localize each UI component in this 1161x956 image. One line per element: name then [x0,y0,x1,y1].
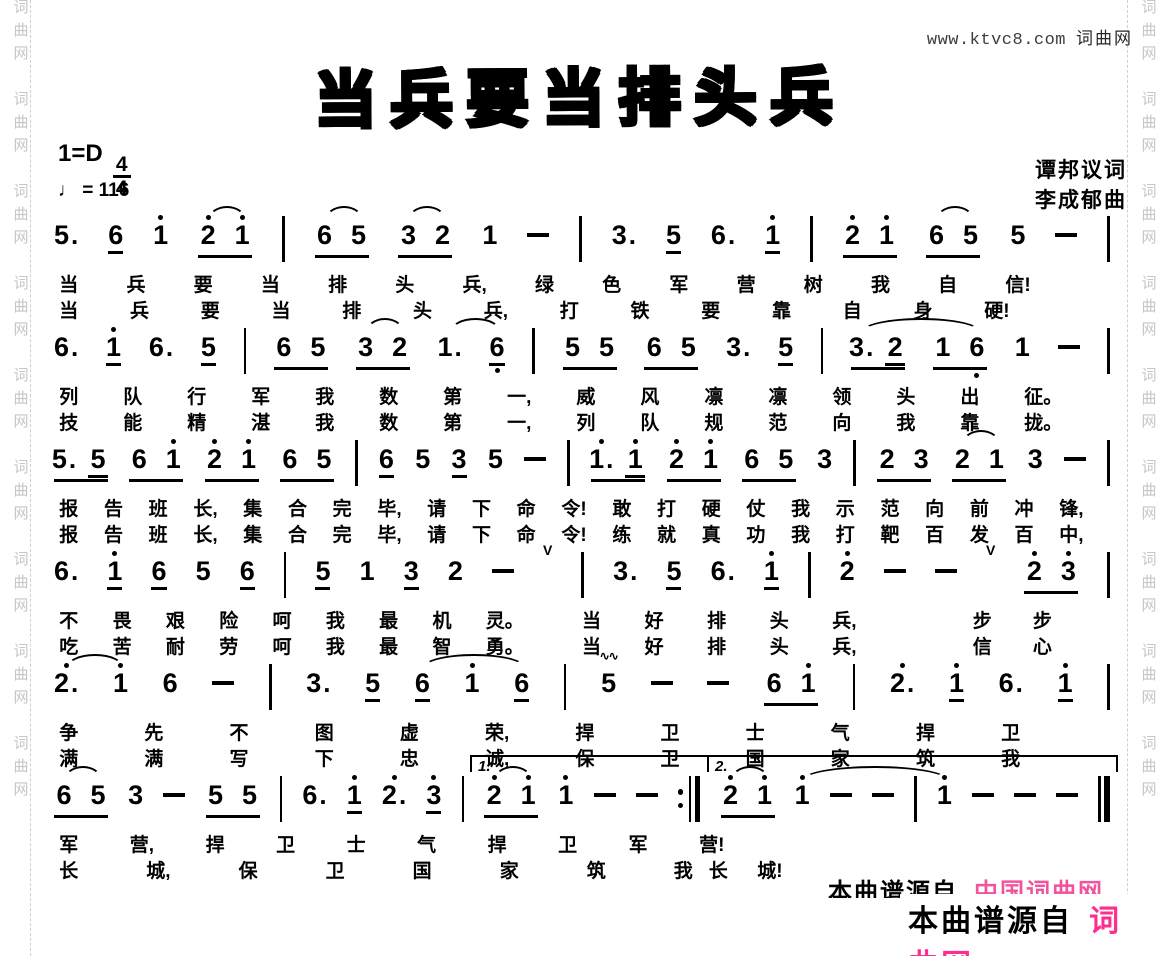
lyric-syllable: 要 [201,296,220,323]
note: 1 [482,210,497,260]
lyric-syllable: 报 [59,520,78,547]
duration-dash [935,546,957,573]
watermark-char: 词 [13,460,28,476]
watermark-char: 曲 [13,483,28,499]
octave-dot-zone [212,434,217,444]
watermark-char: 曲 [1141,207,1156,223]
note-digit: 1 [795,780,810,810]
note-digit: 5 [963,220,978,250]
barline [1107,552,1110,598]
eighth-underline [151,587,166,590]
lyric-syllable: 精 [187,408,206,435]
note-digit: 3 [358,332,373,362]
barline [853,664,856,710]
note-digit: 1 [935,332,950,362]
note: 1 [764,546,779,600]
barline [564,664,567,710]
barline [355,440,358,486]
below-dot-row [198,258,252,268]
note-digit: 5 [201,332,216,362]
lyric-syllable: 营 [737,270,756,297]
eighth-underline [778,363,793,366]
lyric-syllable: 捍 [575,718,594,745]
note: 6 [240,546,255,600]
watermark-char: 曲 [13,391,28,407]
lyric-syllable: 我 [896,408,915,435]
watermark-char: 曲 [13,23,28,39]
note: 5 [778,322,793,376]
sixteenth-line-slot [764,698,784,702]
lyric-segment: 长城,保卫国家筑我 [59,856,693,883]
underlines [514,699,529,702]
beam-row: 61 [129,434,183,478]
underlines [379,475,394,478]
lyric-syllable: 班 [149,494,168,521]
watermark-char: 网 [13,506,28,522]
below-dot-cell [356,370,376,380]
repeat-end-barline [678,770,701,822]
watermark-right-dashed-line [1127,0,1128,956]
watermark-char: 曲 [1141,299,1156,315]
note: 3 [404,546,419,600]
lyric-syllable: 范 [768,408,787,435]
below-dot-cell [678,370,698,380]
note-digit: 5 [315,556,330,586]
note: 6. [54,322,78,372]
barline [914,776,917,822]
eighth-underline [106,363,121,366]
beamed-group: 21 [667,434,721,492]
eighth-underline [315,587,330,590]
below-dot-cell [274,370,294,380]
duration-dash [651,658,673,685]
eighth-underline [666,251,681,254]
note: 1 [163,434,183,478]
below-dot-cell [911,482,931,492]
underlines [151,587,166,590]
note-digit: 1 [107,556,122,586]
below-dot-cell [776,482,796,492]
lyric-syllable: 我 [315,382,334,409]
note-digit: 5 [196,556,211,586]
note: 5 [88,434,108,478]
below-dot-cell [54,482,74,492]
note-digit: 1 [937,780,952,810]
lyric-syllable: 湛 [251,408,270,435]
sixteenth-line-slot [390,362,410,366]
sixteenth-line-slot [280,474,300,478]
watermark-text: 词曲网 [1132,644,1161,706]
beam-row: 65 [644,322,698,366]
below-dot-cell [933,370,953,380]
beam-row: 21 [843,210,897,254]
underlines [415,699,430,702]
below-dot-cell [390,370,410,380]
octave-dot-zone [845,546,850,556]
lyric-syllable: 长, [193,494,217,521]
below-dot-row [274,370,328,380]
underlines [666,587,681,590]
dash-line [707,681,729,685]
lyric-syllable: 排 [328,270,347,297]
watermark-char: 曲 [13,299,28,315]
note: 2. [382,770,406,820]
below-dot-cell [432,258,452,268]
music-system-3: 5.561216565351.12165323213报告班长,集合完毕,请下命令… [54,434,1110,544]
note-digit: 1 [558,780,573,810]
barline [689,776,692,822]
note: 1. [591,434,611,478]
lyric-syllable: 第 [443,408,462,435]
barline [282,216,285,262]
lyric-syllable: 卫 [558,830,577,857]
stamp-source-front: 本曲谱源自词曲网 [900,894,1161,956]
octave-dot-zone [954,658,959,668]
note: 6. [302,770,326,820]
below-dot-row [280,482,334,492]
note: 2 [1024,546,1044,590]
lyric-syllable: 当 [261,270,280,297]
octave-dot-zone [431,770,436,780]
tempo-value: = 116 [82,180,129,201]
octave-dot-zone [392,770,397,780]
lyric-syllable: 兵 [130,296,149,323]
note: 6 [379,434,394,488]
lyric-syllable: 我 [326,632,345,659]
lyric-syllable: 士 [746,718,765,745]
watermark-char: 曲 [1141,483,1156,499]
barline [810,216,813,262]
eighth-underline [514,699,529,702]
dash-line [527,233,549,237]
lyric-syllable: 出 [960,382,979,409]
lyric-syllable: 步 [973,606,992,633]
below-dot-row [206,818,260,828]
below-dot-cell [206,818,226,828]
note: 1 [153,210,168,260]
note: 6. [711,210,735,260]
octave-dot-zone [111,322,116,332]
lyric-syllable: 城! [757,856,782,883]
below-dot-row [721,818,775,828]
lyric-syllable: 排 [707,632,726,659]
note-digit: 1 [241,444,256,474]
below-dot-cell [88,818,108,828]
below-dot-cell [667,482,687,492]
note-digit: 3 [1028,444,1043,474]
underlines [404,587,419,590]
dash-line [1014,793,1036,797]
sixteenth-line-slot [1058,586,1078,590]
duration-dash [884,546,906,573]
note-row: 5.561216565351.12165323213 [54,434,1110,492]
note: 1 [701,434,721,478]
below-dot-cell [239,482,259,492]
note: 5 [1010,210,1025,260]
below-dot-cell [764,706,784,716]
lyric-syllable: 呵 [273,606,292,633]
below-dot-row [591,482,645,492]
barline [462,776,465,822]
note-digit: 3. [613,556,637,586]
lyric-syllable: 领 [832,382,851,409]
note: 6 [163,658,178,708]
song-title: 当兵要当排头兵 [0,44,1161,142]
breath-v: V [543,544,552,556]
note-digit: 3. [726,332,750,362]
note-digit: 6 [282,444,297,474]
note-digit: 3 [426,780,441,810]
sixteenth-line-slot [597,362,617,366]
note-digit: 5 [601,668,616,698]
note-row: 6.16565132V3.56.12V23 [54,546,1110,604]
lyric-row-1: 不畏艰险呵我最机灵。当好排头兵,步步 [54,604,1110,630]
note-digit: 5 [666,220,681,250]
note-digit: 3. [612,220,636,250]
note: 1 [949,658,964,712]
lyric-syllable: 我 [674,856,693,883]
note: 5 [196,546,211,596]
watermark-char: 词 [13,0,28,16]
note-digit: 5. [54,220,78,250]
note-digit: 2 [723,780,738,810]
note-digit: 6. [302,780,326,810]
lyric-syllable: 机 [432,606,451,633]
rhythm-dot: . [166,332,173,362]
duration-dash [163,770,185,797]
octave-dot-low [974,373,979,378]
note-digit: 3. [849,332,873,362]
lyric-syllable: 班 [149,520,168,547]
note-digit: 6 [108,220,123,250]
lyric-syllable: 兵 [126,270,145,297]
note-digit: 6 [767,668,782,698]
lyric-syllable: 向 [925,494,944,521]
rhythm-dot: . [606,444,613,474]
lyric-syllable: 军 [59,830,78,857]
note-digit: 2 [487,780,502,810]
note: 6 [151,546,166,600]
lyric-syllable: 报 [59,494,78,521]
sixteenth-line-slot [776,474,796,478]
below-dot-row [952,482,1006,492]
lyric-row-2: 报告班长,集合完毕,请下命令!练就真功我打靶百发百中, [54,518,1110,544]
note-digit: 2 [888,332,903,362]
lyric-syllable: 营, [130,830,154,857]
sixteenth-line-slot [356,362,376,366]
note-digit: 6. [999,668,1023,698]
note: 3. [613,546,637,596]
dash-line [163,793,185,797]
note: 5 [314,434,334,478]
lyric-syllable: 能 [123,408,142,435]
key-value: 1=D [58,140,103,167]
lyric-syllable: 功 [746,520,765,547]
note-digit: 1 [360,556,375,586]
note-digit: 3 [914,444,929,474]
eighth-underline [426,811,441,814]
underlines [778,363,793,366]
octave-dot-zone [246,434,251,444]
beamed-group: 55 [563,322,617,380]
note-digit: 1 [703,444,718,474]
duration-dash [972,770,994,797]
note: 1 [360,546,375,596]
barline [280,776,283,822]
lyric-syllable: 百 [925,520,944,547]
note-digit: 3 [404,556,419,586]
dash-line [935,569,957,573]
lyric-syllable: 军 [669,270,688,297]
note-digit: 5 [310,332,325,362]
lyric-syllable: 呵 [273,632,292,659]
barline [1107,216,1110,262]
lyric-syllable: 征。 [1024,382,1062,409]
sixteenth-line-slot [398,250,418,254]
note-digit: 6 [514,668,529,698]
lyric-syllable: 耐 [166,632,185,659]
watermark-char: 曲 [1141,667,1156,683]
octave-dot-zone [674,434,679,444]
lyric-syllable: 心 [1033,632,1052,659]
lyric-syllable: 捍 [488,830,507,857]
watermark-text: 词曲网 [4,276,38,338]
lyric-syllable: 集 [243,494,262,521]
note-digit: 5 [599,332,614,362]
octave-dot-zone [769,546,774,556]
barline [1107,328,1110,374]
sixteenth-line-slot [742,474,762,478]
sixteenth-line-slot [315,250,335,254]
note-digit: 1. [589,444,613,474]
lyric-syllable: 一, [507,408,531,435]
tremolo-mark: ∿∿ [600,649,618,663]
note-digit: 1 [757,780,772,810]
rhythm-dot: . [71,556,78,586]
below-dot-row [356,370,410,380]
watermark-char: 网 [13,782,28,798]
octave-dot-zone [1066,546,1071,556]
watermark-char: 网 [1141,322,1156,338]
note-digit: 2 [1027,556,1042,586]
lyric-syllable: 列 [576,408,595,435]
watermark-char: 词 [13,552,28,568]
note-digit: 6 [163,668,178,698]
lyric-syllable: 靠 [772,296,791,323]
volta-label: 1. [478,758,491,775]
note-digit: 2 [201,220,216,250]
note-digit: 2 [207,444,222,474]
watermark-char: 词 [1141,644,1156,660]
slur-arc [936,206,974,220]
lyric-row-2: 吃苦耐劳呵我最智勇。当好排头兵,信心 [54,630,1110,656]
lyric-syllable: 硬! [984,296,1009,323]
note: 5 [597,322,617,366]
watermark-char: 网 [1141,782,1156,798]
sixteenth-underline [625,475,645,478]
lyric-syllable: 向 [832,408,851,435]
below-dot-cell [398,258,418,268]
octave-dot-zone [599,434,604,444]
beam-row: 23 [1024,546,1078,590]
note-digit: 1 [628,444,643,474]
lyric-syllable: 图 [315,718,334,745]
beamed-group: 1.1 [591,434,645,492]
lyric-syllable: 气 [417,830,436,857]
below-dot-cell [198,258,218,268]
lyric-segment: 争先不图虚荣,捍卫士气捍卫 [59,718,1020,745]
duration-dash [1064,434,1086,461]
barline [1107,664,1110,710]
note-digit: 1 [166,444,181,474]
sixteenth-line-slot [349,250,369,254]
watermark-text: 词曲网 [4,368,38,430]
volta-bracket: 1. [470,755,709,772]
lyric-syllable: 完 [333,494,352,521]
note: 5 [206,770,226,814]
watermark-char: 曲 [1141,575,1156,591]
lyric-row-1: 争先不图虚荣,捍卫士气捍卫 [54,716,1110,742]
note-digit: 2 [845,220,860,250]
watermark-char: 词 [13,184,28,200]
underlines [107,587,122,590]
lyric-syllable: 当 [272,296,291,323]
music-system-5: 2.163.56165∿∿612.16.1争先不图虚荣,捍卫士气捍卫满满写下忠诚… [54,658,1110,768]
below-dot-cell [967,370,987,380]
note-digit: 2 [392,332,407,362]
watermark-text: 词曲网 [1132,276,1161,338]
note: 2 [877,434,897,478]
note: 1 [1058,658,1073,712]
lyric-syllable: 百 [1015,520,1034,547]
lyric-row-1: 当兵要当排头兵,绿色军营树我自信! [54,268,1110,294]
note-digit: 5 [208,780,223,810]
sixteenth-line-slot [240,810,260,814]
below-dot-cell [742,482,762,492]
lyric-syllable: 风 [640,382,659,409]
note-digit: 6 [647,332,662,362]
lyric-syllable: 请 [427,494,446,521]
note-digit: 6 [929,220,944,250]
lyric-syllable: 卫 [1001,718,1020,745]
lyric-row-1: 报告班长,集合完毕,请下命令!敢打硬仗我示范向前冲锋, [54,492,1110,518]
dash-line [1055,233,1077,237]
lyric-syllable: 艰 [166,606,185,633]
eighth-underline [415,699,430,702]
note-digit: 5 [90,780,105,810]
sixteenth-line-slot [1024,586,1044,590]
beam-row: 61 [764,658,818,702]
beamed-group: 5.5 [54,434,108,492]
note-digit: 1. [437,332,461,362]
thick-barline [695,776,701,822]
underlines [347,811,362,814]
lyric-syllable: 捍 [206,830,225,857]
sixteenth-line-slot [163,474,183,478]
sixteenth-line-slot [239,474,259,478]
below-dot-row [129,482,183,492]
lyric-syllable: 下 [472,520,491,547]
note-digit: 1 [521,780,536,810]
sixteenth-line-slot [54,474,74,478]
watermark-char: 网 [1141,690,1156,706]
note: 2 [843,210,863,254]
lyric-syllable: 合 [288,520,307,547]
sixteenth-line-slot [274,362,294,366]
below-dot-cell [843,258,863,268]
below-dot-cell [314,482,334,492]
beamed-group: 65 [280,434,334,492]
